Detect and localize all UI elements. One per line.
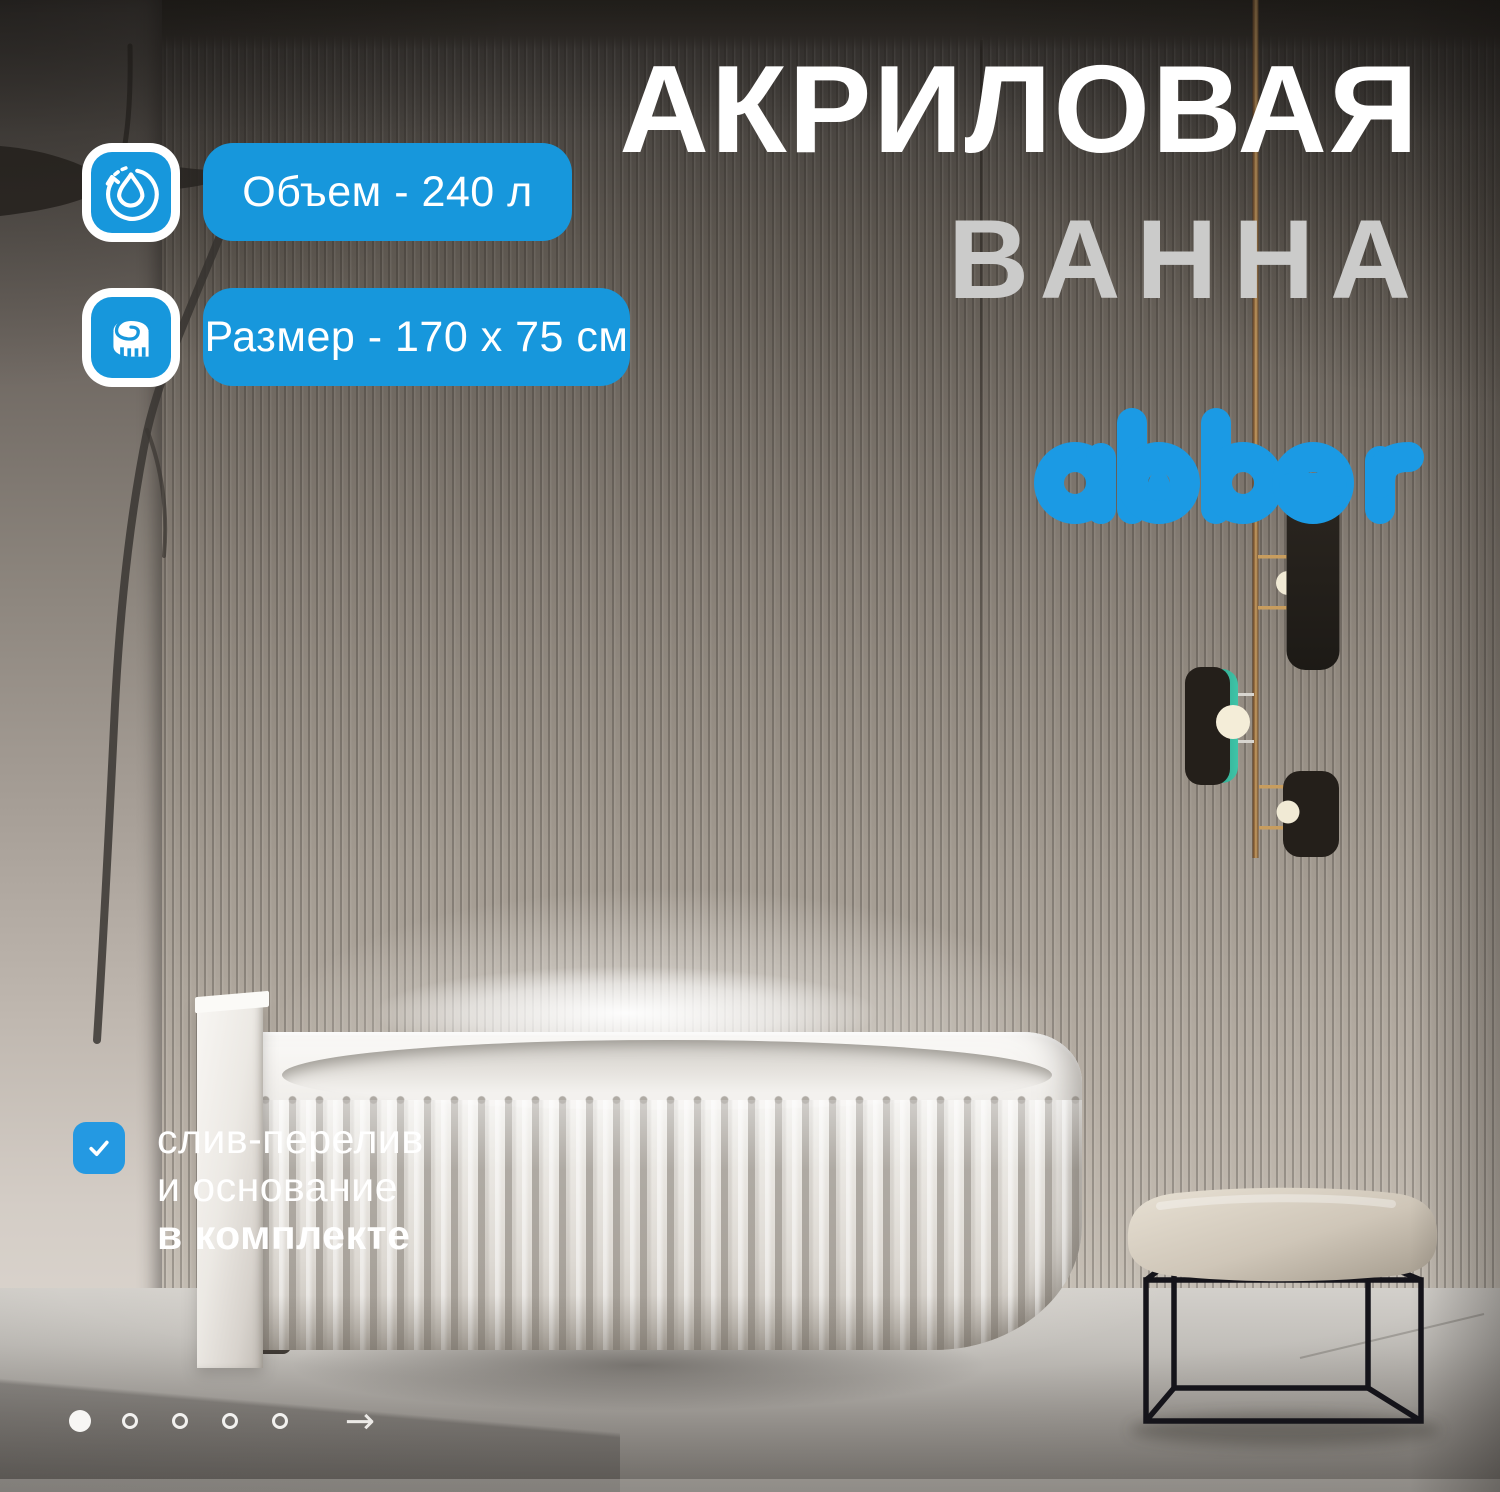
product-card: АКРИЛОВАЯ ВАННА Объем - 240 л: [0, 0, 1500, 1492]
checkmark-icon: [82, 1131, 116, 1165]
title-line-2: ВАННА: [948, 204, 1427, 316]
size-badge-label: Размер - 170 х 75 см: [205, 313, 629, 362]
carousel-dot-active[interactable]: [69, 1410, 91, 1432]
carousel-dot[interactable]: [122, 1413, 138, 1429]
volume-badge-icon-tile: [82, 143, 180, 242]
title-line-1: АКРИЛОВАЯ: [619, 48, 1420, 172]
feature-line-3: в комплекте: [157, 1211, 424, 1259]
carousel-dot[interactable]: [222, 1413, 238, 1429]
feature-line-2: и основание: [157, 1163, 424, 1211]
included-check-tile: [73, 1122, 125, 1174]
measuring-tape-icon: [100, 307, 162, 369]
size-badge-icon-tile: [82, 288, 180, 387]
ottoman-stool: [1095, 1165, 1485, 1465]
volume-badge-label: Объем - 240 л: [242, 168, 533, 217]
carousel-dot[interactable]: [272, 1413, 288, 1429]
water-volume-icon: [100, 162, 162, 224]
included-feature-text: слив-перелив и основание в комплекте: [157, 1115, 424, 1259]
brand-logo: [1028, 403, 1438, 533]
carousel-next-arrow[interactable]: →: [333, 1399, 387, 1443]
carousel-dots: [55, 1405, 305, 1437]
size-badge: Размер - 170 х 75 см: [203, 288, 630, 386]
feature-line-1: слив-перелив: [157, 1115, 424, 1163]
carousel-dot[interactable]: [172, 1413, 188, 1429]
volume-badge: Объем - 240 л: [203, 143, 572, 241]
